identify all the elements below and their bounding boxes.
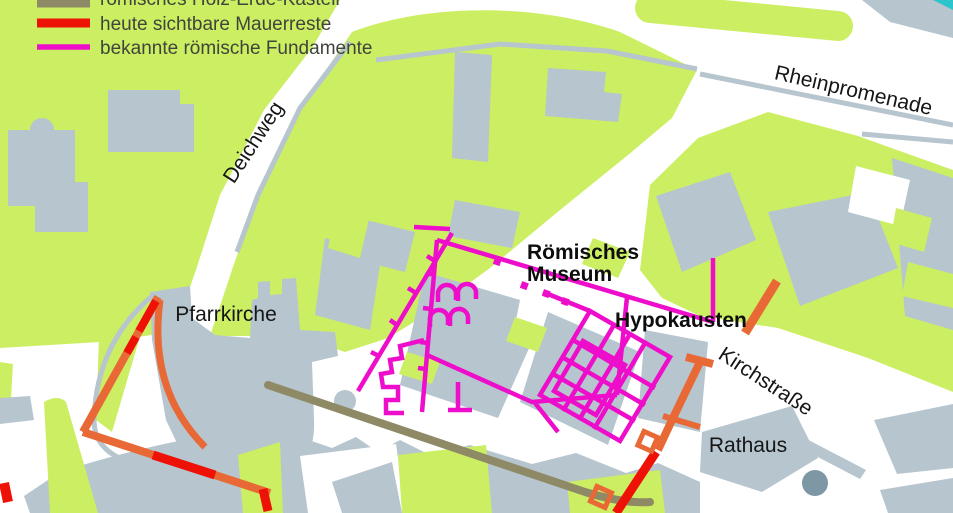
town-map: Deichweg Rheinpromenade Pfarrkirche Römi… xyxy=(0,0,953,513)
label-museum-line1: Römisches xyxy=(527,241,639,264)
foundation-top-bar xyxy=(414,227,450,229)
map-canvas: Deichweg Rheinpromenade Pfarrkirche Römi… xyxy=(0,0,953,513)
legend-label-fort: römisches Holz-Erde-Kastell xyxy=(100,0,340,10)
label-pfarrkirche: Pfarrkirche xyxy=(175,303,277,326)
legend-label-foundations: bekannte römische Fundamente xyxy=(100,38,373,59)
legend-label-walls: heute sichtbare Mauerreste xyxy=(100,14,331,35)
green-strip-left-edge xyxy=(0,362,13,400)
label-hypokausten: Hypokausten xyxy=(615,309,747,332)
building xyxy=(452,52,492,162)
visible-wall-segment xyxy=(263,489,268,511)
building-tower-round xyxy=(30,118,54,142)
green-stripe-top-right xyxy=(650,8,838,26)
visible-wall-segment xyxy=(4,483,8,502)
label-rathaus: Rathaus xyxy=(709,434,787,457)
building xyxy=(0,396,34,424)
rathaus-dot xyxy=(802,470,828,496)
label-museum-line2: Museum xyxy=(527,263,612,286)
